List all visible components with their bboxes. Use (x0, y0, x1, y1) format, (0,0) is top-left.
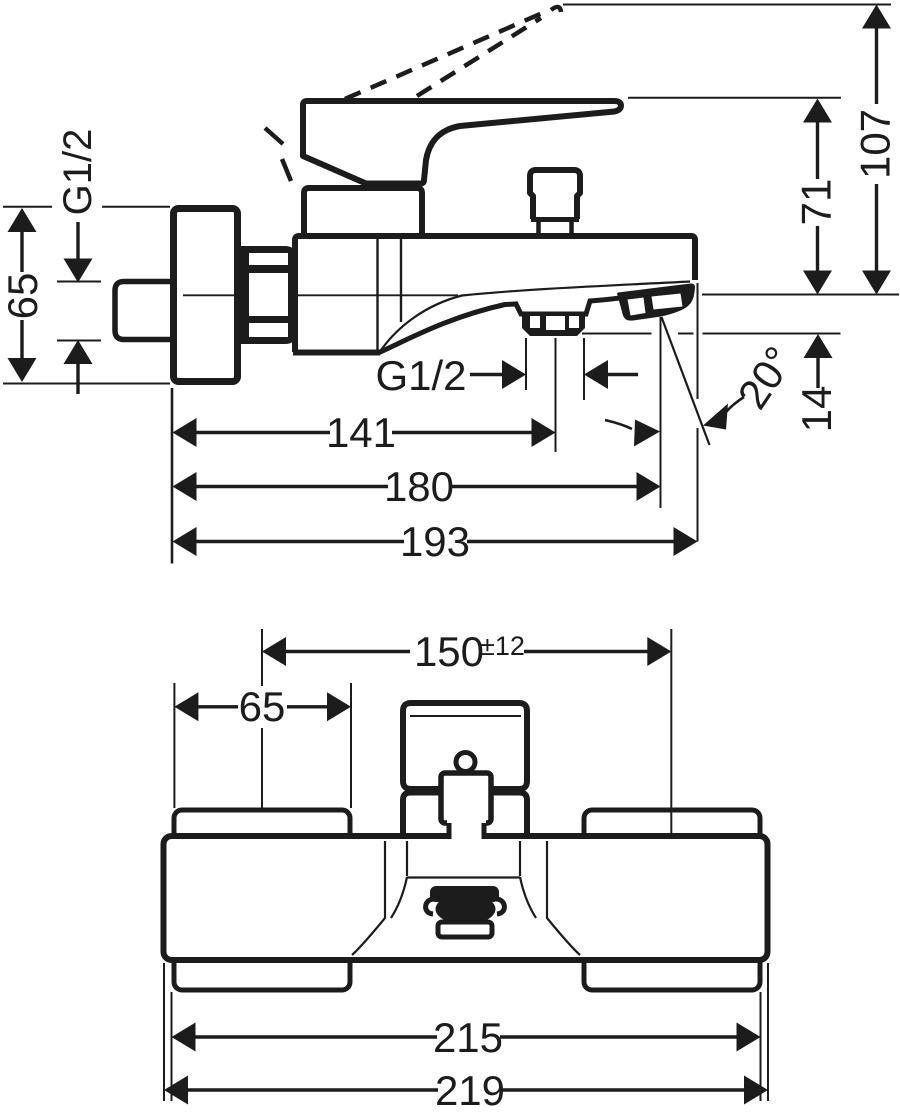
svg-text:180: 180 (384, 463, 454, 510)
svg-text:±12: ±12 (480, 631, 525, 661)
svg-text:G1/2: G1/2 (56, 129, 100, 216)
svg-text:65: 65 (239, 683, 286, 730)
svg-text:14: 14 (793, 386, 840, 433)
svg-text:219: 219 (435, 1067, 505, 1113)
svg-text:107: 107 (852, 109, 899, 179)
svg-text:215: 215 (433, 1014, 503, 1061)
svg-text:71: 71 (793, 179, 840, 226)
svg-text:20°: 20° (728, 338, 802, 417)
svg-text:65: 65 (0, 273, 46, 320)
svg-text:150: 150 (414, 628, 484, 675)
svg-text:G1/2: G1/2 (375, 352, 466, 399)
svg-text:141: 141 (326, 409, 396, 456)
svg-text:193: 193 (400, 518, 470, 565)
